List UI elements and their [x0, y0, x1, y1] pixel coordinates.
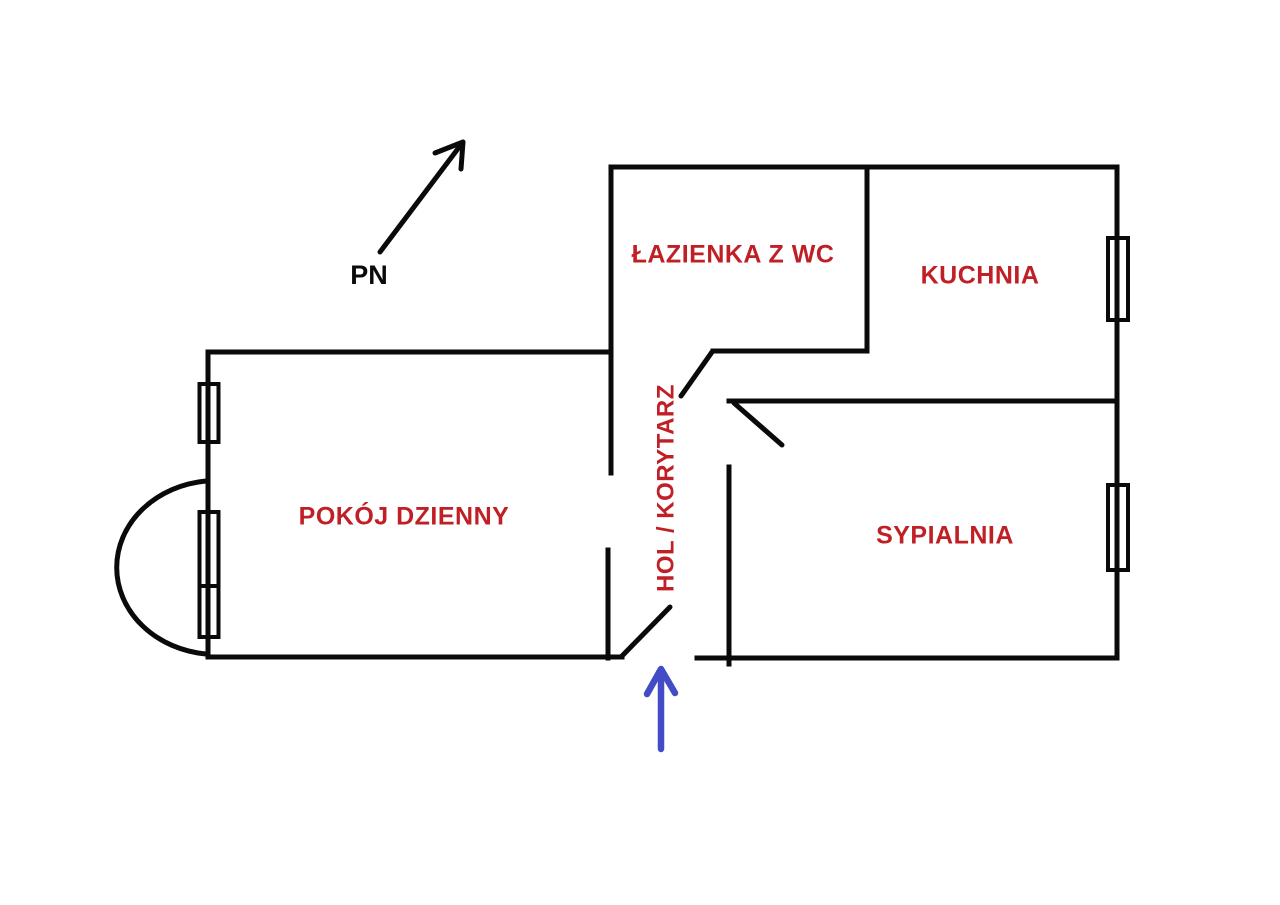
plan-background [0, 0, 1280, 905]
room-label-kitchen: KUCHNIA [921, 262, 1040, 290]
room-label-bathroom: ŁAZIENKA Z WC [632, 241, 835, 269]
room-label-hall: HOL / KORYTARZ [652, 384, 679, 592]
floor-plan-canvas: PN ŁAZIENKA Z WC KUCHNIA POKÓJ DZIENNY H… [0, 0, 1280, 905]
floor-plan: PN ŁAZIENKA Z WC KUCHNIA POKÓJ DZIENNY H… [0, 0, 1280, 905]
room-label-bedroom: SYPIALNIA [876, 522, 1014, 550]
north-label: PN [350, 260, 388, 290]
room-label-living-room: POKÓJ DZIENNY [299, 501, 510, 531]
